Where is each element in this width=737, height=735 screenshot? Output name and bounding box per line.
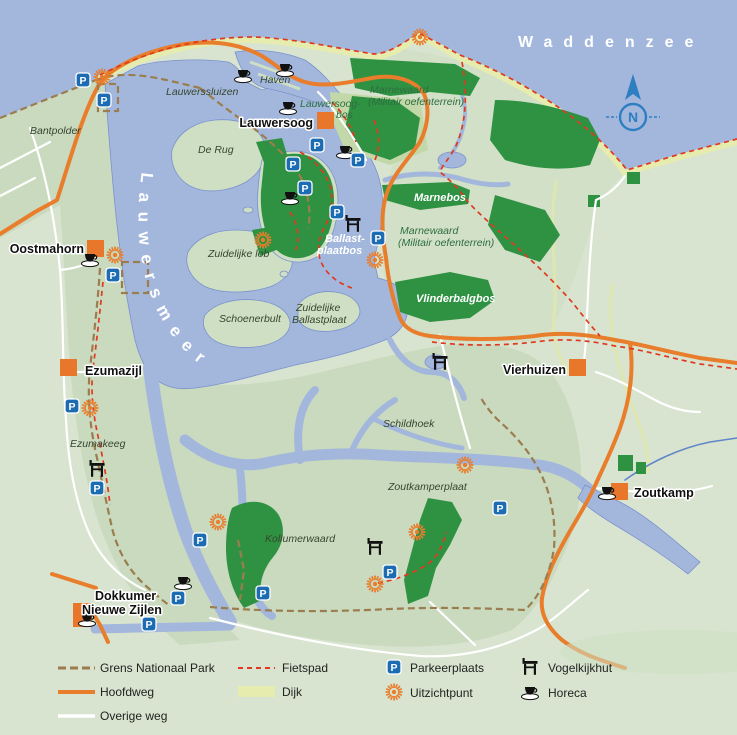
label-marnewaard-zuid-2: (Militair oefenterrein) — [398, 237, 494, 249]
parking-icon[interactable] — [193, 533, 207, 547]
legend-swatch-dijk — [238, 686, 275, 697]
label-marnewaard-noord-1: Marnewaard — [370, 84, 430, 96]
islet — [243, 207, 253, 213]
parking-icon[interactable] — [351, 153, 365, 167]
viewpoint-icon[interactable] — [255, 232, 272, 249]
legend-label-dijk: Dijk — [282, 685, 303, 699]
label-zuidelijke-ballastplaat-1: Zuidelijke — [295, 302, 341, 314]
lauwersmeer-park-map: P — [0, 0, 737, 735]
label-zoutkamperplaat: Zoutkamperplaat — [387, 481, 468, 493]
label-oostmahorn: Oostmahorn — [10, 242, 84, 256]
label-ballastplaatbos-2: plaatbos — [316, 245, 362, 257]
label-de-rug: De Rug — [198, 144, 234, 156]
viewpoint-icon[interactable] — [82, 400, 99, 417]
parking-icon[interactable] — [256, 586, 270, 600]
forest-patch — [627, 172, 640, 184]
parking-icon[interactable] — [97, 93, 111, 107]
parking-icon[interactable] — [142, 617, 156, 631]
parking-icon[interactable] — [171, 591, 185, 605]
label-marnewaard-zuid-1: Marnewaard — [400, 225, 460, 237]
parking-icon[interactable] — [330, 205, 344, 219]
legend-label-overige-weg: Overige weg — [100, 709, 167, 723]
parking-icon[interactable] — [286, 157, 300, 171]
label-ezumakeeg: Ezumakeeg — [70, 438, 126, 450]
sea-label: Waddenzee — [518, 34, 704, 51]
label-ezumazijl: Ezumazijl — [85, 364, 142, 378]
legend-label-horeca: Horeca — [548, 686, 587, 700]
label-zoutkamp: Zoutkamp — [634, 486, 694, 500]
forest-patch — [618, 455, 633, 471]
legend-label-vogelkijkhut: Vogelkijkhut — [548, 661, 613, 675]
label-kollumerwaard: Kollumerwaard — [265, 533, 336, 545]
label-haven: Haven — [260, 74, 291, 86]
label-vlinderbalgbos: Vlinderbalgbos — [416, 293, 495, 305]
viewpoint-icon[interactable] — [210, 514, 227, 531]
legend-label-fietspad: Fietspad — [282, 661, 328, 675]
forest-patch — [588, 195, 600, 207]
label-marnewaard-noord-2: (Militair oefenterrein) — [368, 96, 464, 108]
legend-viewpoint-icon — [386, 684, 403, 701]
label-marnebos: Marnebos — [414, 192, 466, 204]
label-vierhuizen: Vierhuizen — [503, 363, 566, 377]
label-lauwerssluizen: Lauwerssluizen — [166, 86, 239, 98]
viewpoint-icon[interactable] — [367, 252, 384, 269]
viewpoint-icon[interactable] — [409, 524, 426, 541]
viewpoint-icon[interactable] — [412, 29, 429, 46]
label-dokkumer-2: Nieuwe Zijlen — [82, 603, 162, 617]
forest-patch — [636, 462, 646, 474]
viewpoint-icon[interactable] — [457, 457, 474, 474]
label-lauwersoogbos-2: bos — [336, 109, 354, 121]
town-block-lauwersoog[interactable] — [317, 112, 334, 129]
label-ballastplaatbos-1: Ballast- — [325, 233, 365, 245]
label-schoenerbult: Schoenerbult — [219, 313, 282, 325]
label-dokkumer-1: Dokkumer — [95, 589, 156, 603]
compass-letter: N — [628, 109, 638, 125]
map-canvas: P — [0, 0, 737, 735]
islet — [280, 271, 288, 277]
parking-icon[interactable] — [493, 501, 507, 515]
label-schildhoek: Schildhoek — [383, 418, 435, 430]
label-zuidelijke-lob: Zuidelijke lob — [207, 248, 269, 260]
town-block-vierhuizen[interactable] — [569, 359, 586, 376]
viewpoint-icon[interactable] — [367, 576, 384, 593]
parking-icon[interactable] — [76, 73, 90, 87]
parking-icon[interactable] — [310, 138, 324, 152]
parking-icon[interactable] — [371, 231, 385, 245]
label-lauwersoog: Lauwersoog — [239, 116, 313, 130]
viewpoint-icon[interactable] — [94, 69, 111, 86]
parking-icon[interactable] — [106, 268, 120, 282]
town-block-ezumazijl[interactable] — [60, 359, 77, 376]
viewpoint-icon[interactable] — [107, 247, 124, 264]
parking-icon[interactable] — [90, 481, 104, 495]
label-bantpolder: Bantpolder — [30, 125, 81, 137]
legend-label-parkeerplaats: Parkeerplaats — [410, 661, 484, 675]
legend-label-grens: Grens Nationaal Park — [100, 661, 216, 675]
legend-parking-icon — [387, 660, 401, 674]
parking-icon[interactable] — [65, 399, 79, 413]
dokkumer-canal — [95, 626, 230, 629]
parking-icon[interactable] — [383, 565, 397, 579]
legend-label-uitzichtpunt: Uitzichtpunt — [410, 686, 473, 700]
parking-icon[interactable] — [298, 181, 312, 195]
legend-label-hoofdweg: Hoofdweg — [100, 685, 154, 699]
label-zuidelijke-ballastplaat-2: Ballastplaat — [292, 314, 347, 326]
